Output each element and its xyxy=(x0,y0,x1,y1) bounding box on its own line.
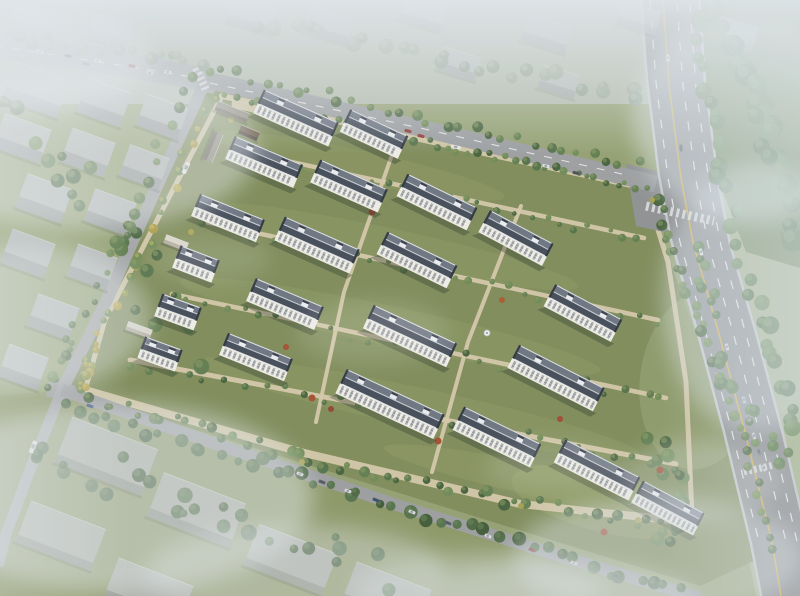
aerial-site-rendering xyxy=(0,0,800,596)
haze-overlay xyxy=(0,0,800,596)
rendering-canvas xyxy=(0,0,800,596)
